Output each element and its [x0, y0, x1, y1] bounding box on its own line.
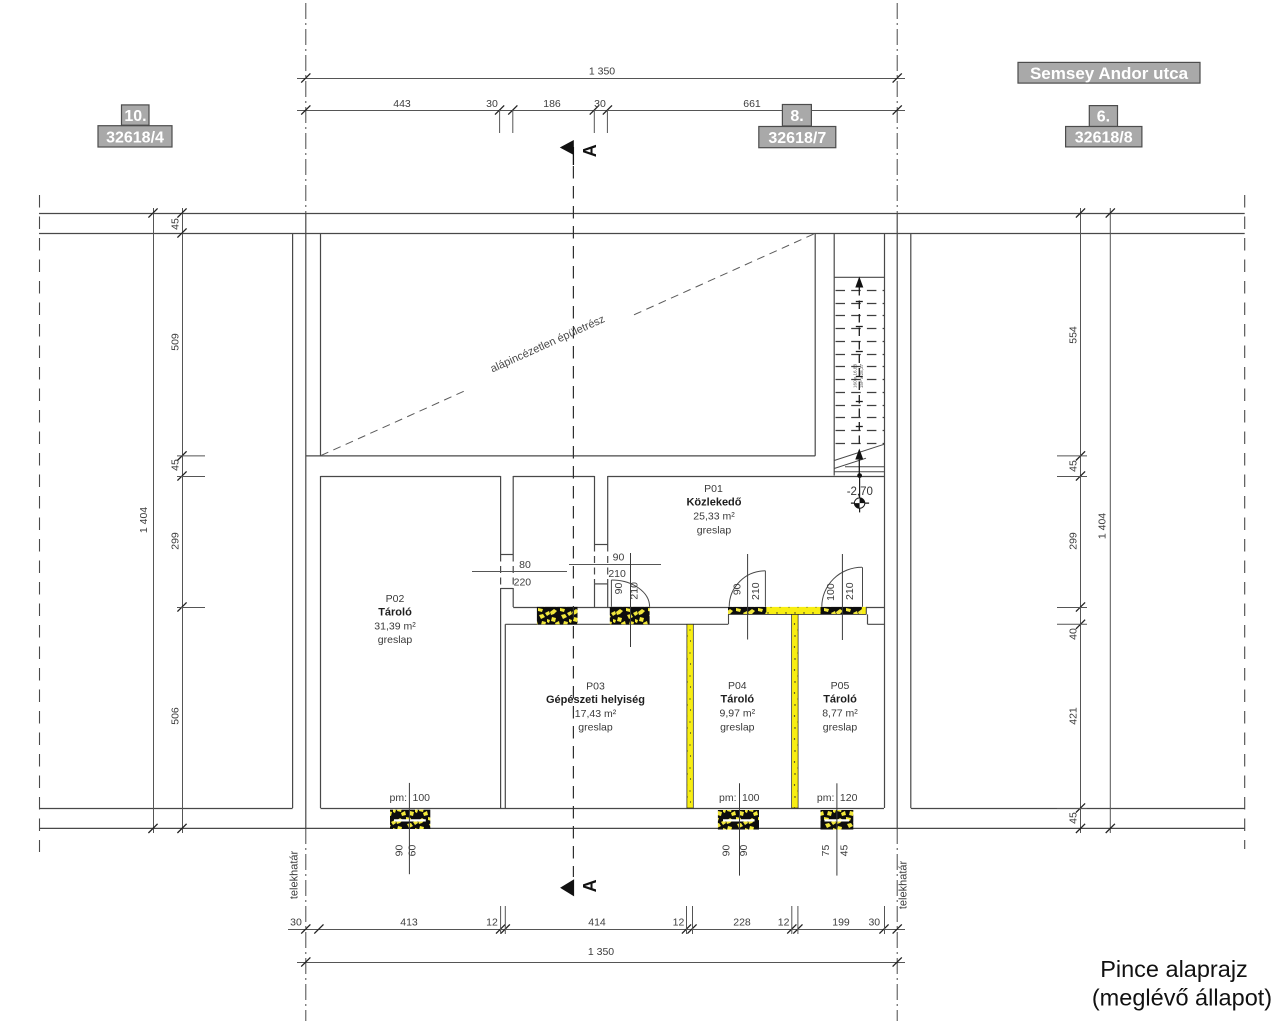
svg-text:greslap: greslap: [697, 525, 732, 537]
svg-text:509: 509: [170, 333, 182, 351]
svg-text:32618/4: 32618/4: [106, 130, 164, 147]
svg-text:90: 90: [613, 552, 625, 564]
svg-text:413: 413: [400, 917, 418, 929]
svg-text:greslap: greslap: [720, 722, 755, 734]
svg-text:12: 12: [778, 917, 790, 929]
svg-text:31,39 m²: 31,39 m²: [374, 621, 416, 633]
svg-text:45: 45: [838, 845, 850, 857]
svg-text:220: 220: [514, 577, 532, 589]
svg-text:Tároló: Tároló: [720, 694, 754, 706]
svg-text:12: 12: [673, 917, 685, 929]
svg-text:P04: P04: [728, 680, 747, 692]
svg-text:10.: 10.: [124, 108, 146, 125]
svg-text:-2,70: -2,70: [847, 486, 873, 498]
svg-text:120: 120: [840, 792, 858, 804]
svg-text:661: 661: [743, 98, 761, 110]
svg-text:210: 210: [750, 582, 762, 600]
svg-text:1 404: 1 404: [138, 507, 150, 533]
svg-text:40: 40: [1068, 628, 1080, 640]
svg-text:alápincézetlen épületrész: alápincézetlen épületrész: [489, 313, 607, 375]
svg-text:12: 12: [486, 917, 498, 929]
svg-text:1 404: 1 404: [1097, 513, 1109, 539]
svg-text:210: 210: [629, 582, 641, 600]
svg-text:421: 421: [1068, 707, 1080, 725]
svg-text:25,33 m²: 25,33 m²: [693, 511, 735, 523]
svg-text:228: 228: [733, 917, 751, 929]
svg-text:186: 186: [543, 98, 561, 110]
svg-text:Tároló: Tároló: [378, 607, 412, 619]
svg-text:Semsey Andor utca: Semsey Andor utca: [1030, 64, 1189, 83]
svg-text:100: 100: [742, 792, 760, 804]
svg-text:32618/7: 32618/7: [768, 130, 826, 147]
svg-text:telekhatár: telekhatár: [898, 861, 910, 910]
svg-text:414: 414: [588, 917, 606, 929]
svg-text:299: 299: [170, 532, 182, 550]
svg-text:(meglévő állapot): (meglévő állapot): [1092, 985, 1272, 1011]
svg-text:90: 90: [720, 845, 732, 857]
svg-text:90: 90: [732, 583, 744, 595]
svg-text:P02: P02: [386, 593, 405, 605]
svg-text:30: 30: [868, 917, 880, 929]
svg-text:Pince alaprajz: Pince alaprajz: [1100, 956, 1248, 982]
svg-text:30: 30: [290, 917, 302, 929]
svg-text:554: 554: [1068, 326, 1080, 344]
svg-text:45: 45: [170, 218, 182, 230]
svg-text:506: 506: [170, 707, 182, 725]
svg-text:60: 60: [407, 845, 419, 857]
svg-text:Tároló: Tároló: [823, 694, 857, 706]
svg-text:100: 100: [825, 583, 837, 601]
svg-text:P03: P03: [586, 681, 605, 693]
svg-text:8,77 m²: 8,77 m²: [822, 708, 858, 720]
svg-text:90: 90: [738, 845, 750, 857]
svg-text:160 x 16,88: 160 x 16,88: [853, 364, 858, 388]
svg-text:15F x 28,37: 15F x 28,37: [859, 363, 864, 388]
svg-text:pm:: pm:: [817, 792, 835, 804]
svg-text:443: 443: [393, 98, 411, 110]
svg-text:telekhatár: telekhatár: [289, 851, 301, 900]
svg-text:199: 199: [832, 917, 850, 929]
svg-text:299: 299: [1068, 532, 1080, 550]
svg-text:Gépészeti helyiség: Gépészeti helyiség: [546, 694, 645, 706]
svg-text:P01: P01: [704, 483, 723, 495]
svg-text:greslap: greslap: [378, 634, 413, 646]
svg-text:100: 100: [413, 792, 431, 804]
svg-text:210: 210: [608, 568, 626, 580]
svg-text:pm:: pm:: [719, 792, 737, 804]
svg-text:6.: 6.: [1097, 109, 1110, 126]
svg-text:80: 80: [519, 559, 531, 571]
svg-text:45: 45: [1068, 460, 1080, 472]
svg-text:17,43 m²: 17,43 m²: [575, 708, 617, 720]
svg-text:A: A: [580, 144, 600, 157]
svg-text:90: 90: [393, 845, 405, 857]
svg-text:Közlekedő: Közlekedő: [686, 497, 741, 509]
svg-text:8.: 8.: [790, 108, 803, 125]
svg-text:30: 30: [594, 98, 606, 110]
svg-text:1 350: 1 350: [589, 66, 615, 78]
svg-text:90: 90: [613, 583, 625, 595]
svg-text:greslap: greslap: [823, 722, 858, 734]
svg-text:pm:: pm:: [389, 792, 407, 804]
svg-text:32618/8: 32618/8: [1075, 130, 1133, 147]
svg-text:9,97 m²: 9,97 m²: [719, 708, 755, 720]
svg-text:210: 210: [844, 582, 856, 600]
svg-text:P05: P05: [831, 680, 850, 692]
svg-text:1 350: 1 350: [588, 946, 614, 958]
svg-text:A: A: [580, 879, 600, 892]
svg-text:45: 45: [170, 459, 182, 471]
svg-text:greslap: greslap: [578, 722, 613, 734]
svg-text:75: 75: [820, 845, 832, 857]
svg-text:30: 30: [486, 98, 498, 110]
svg-text:45: 45: [1068, 812, 1080, 824]
